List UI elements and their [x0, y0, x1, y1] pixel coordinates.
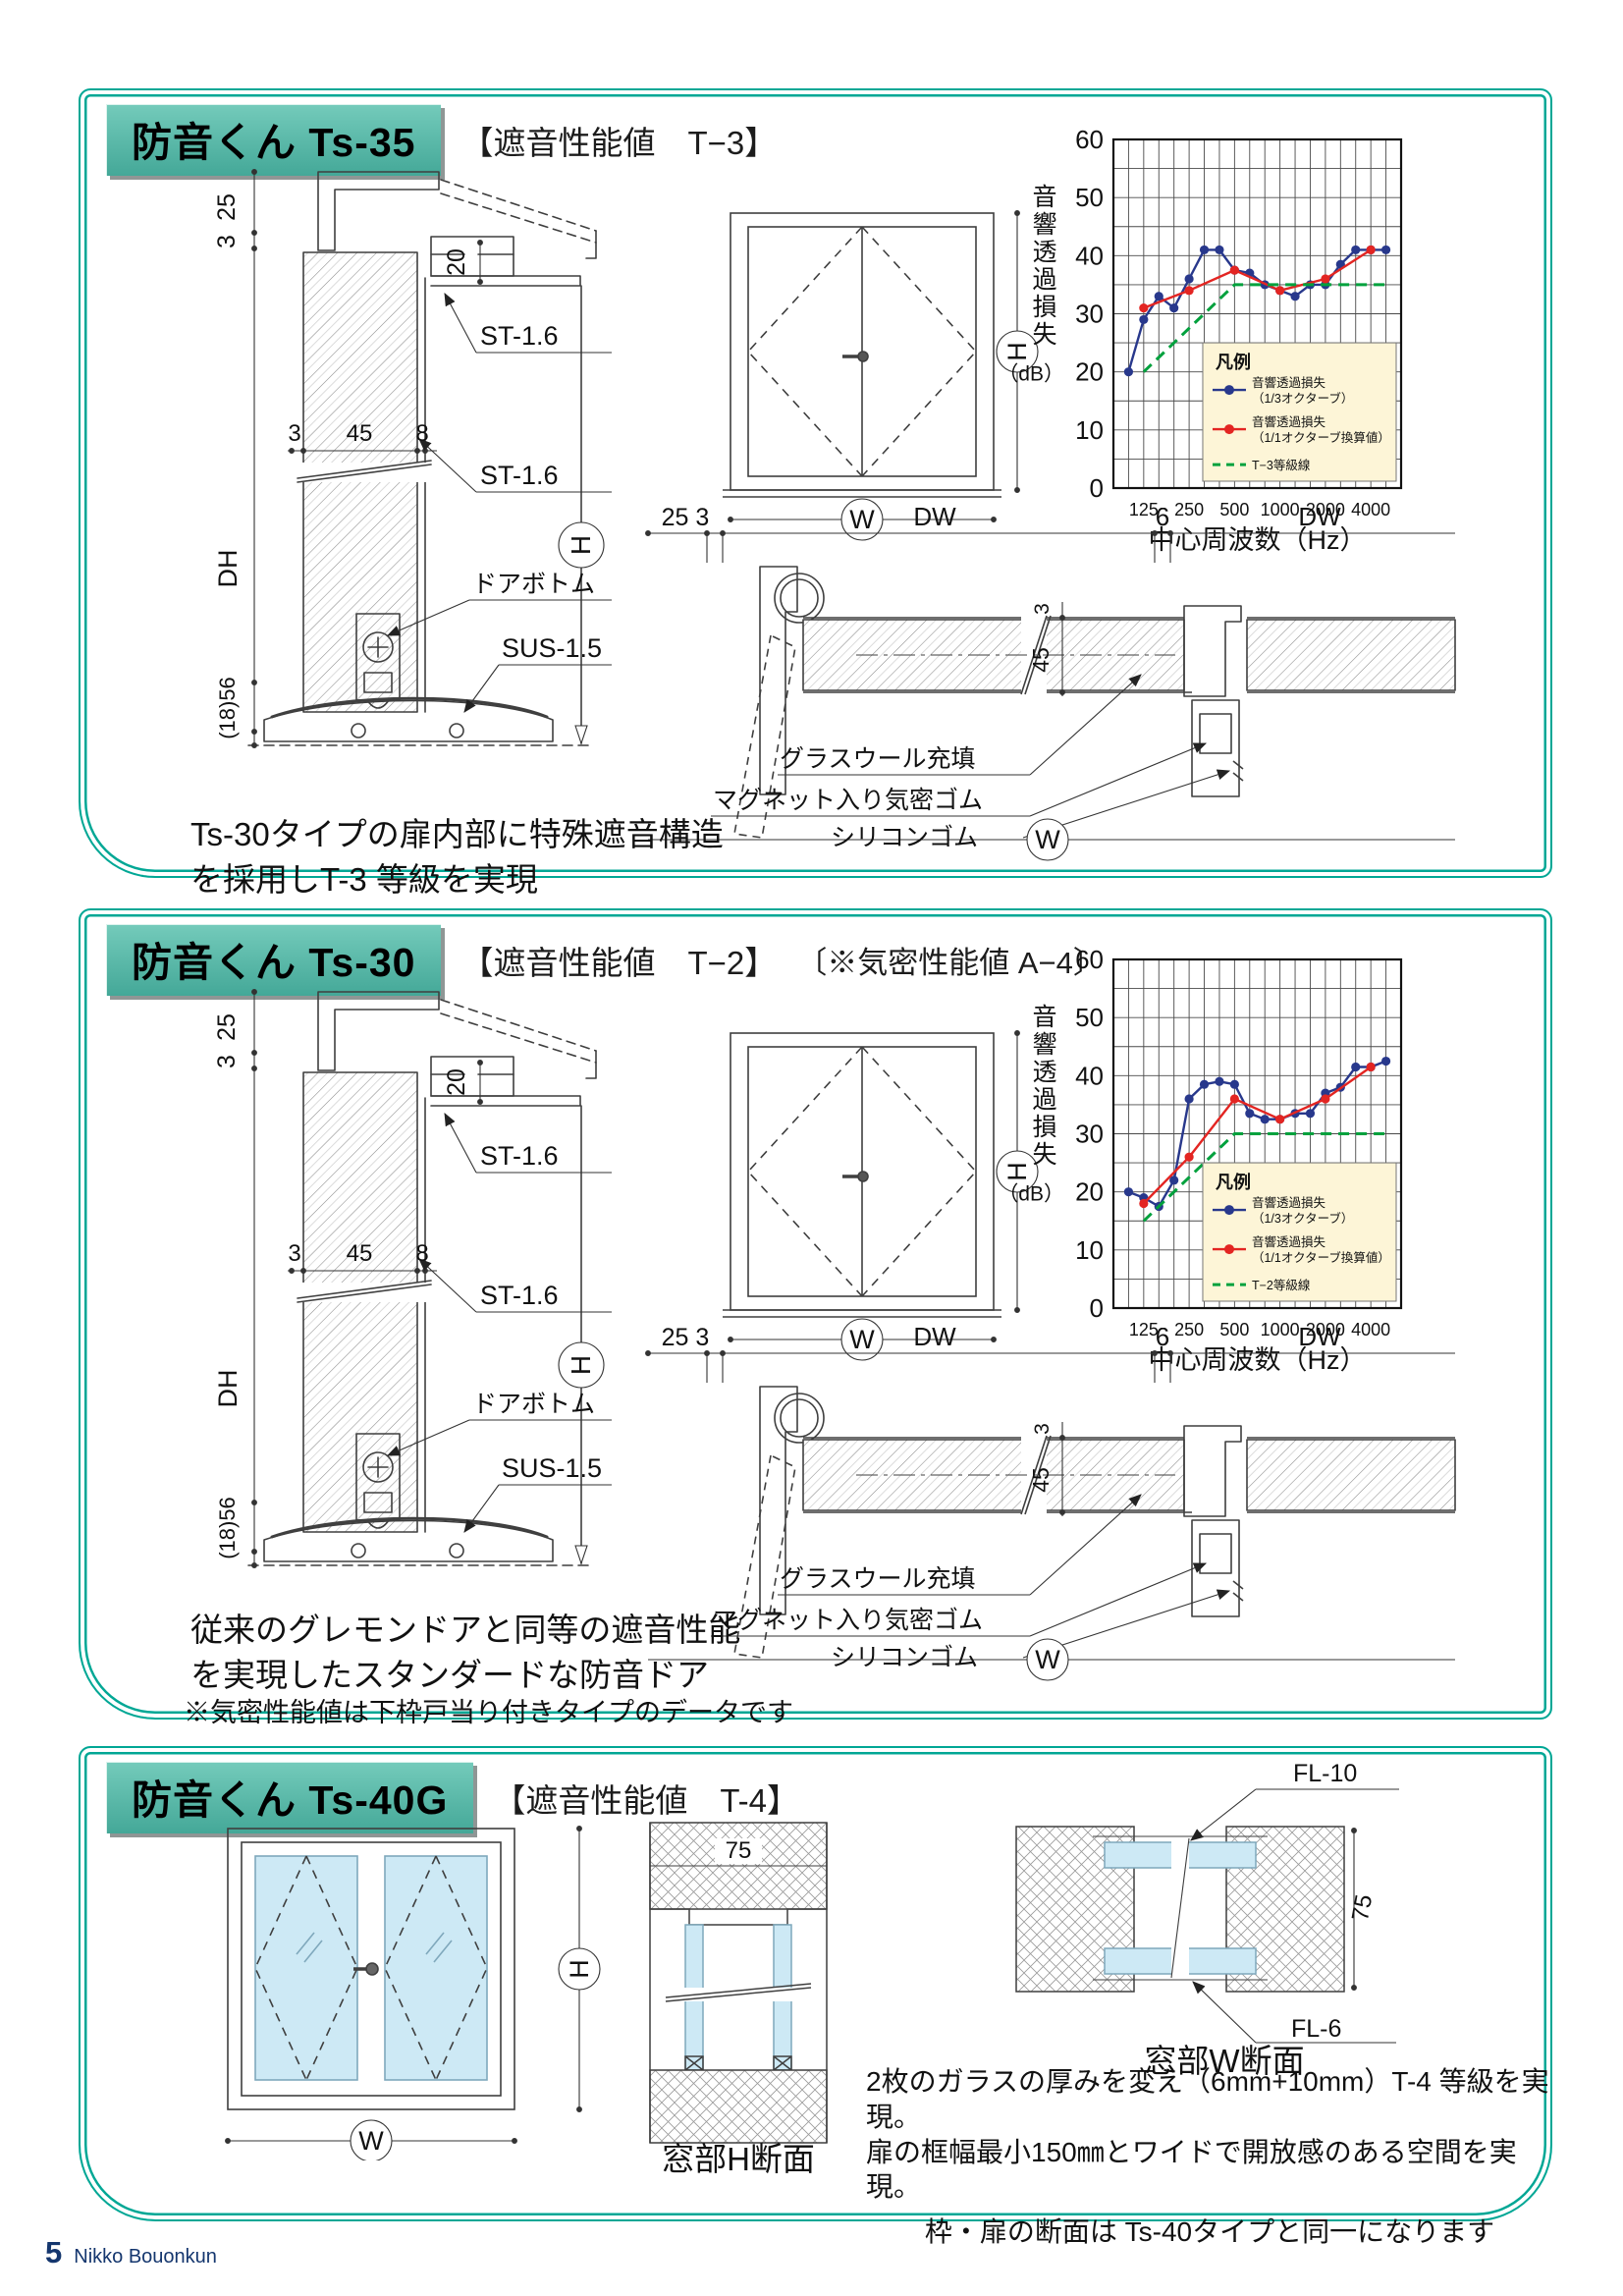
svg-text:音響透過損失: 音響透過損失: [1252, 375, 1326, 390]
svg-text:50: 50: [1075, 183, 1104, 212]
sus15-label: SUS-1.5: [502, 1453, 602, 1483]
panel-ts35: 防音くん Ts-35 【遮音性能値 T−3】: [79, 88, 1552, 878]
dim-45-label: 45: [347, 420, 373, 447]
magnet-seal-label: マグネット入り気密ゴム: [713, 1607, 983, 1634]
svg-text:凡例: 凡例: [1216, 1172, 1251, 1192]
dim-6-label: 6: [1156, 508, 1169, 531]
silicone-label: シリコンゴム: [831, 1644, 978, 1671]
dim-45-label: 45: [1028, 647, 1054, 673]
svg-text:音響透過損失: 音響透過損失: [1252, 414, 1326, 429]
ts40g-caption-line3: 枠・扉の断面は Ts-40タイプと同一になります: [866, 2214, 1553, 2250]
st16-label-top: ST-1.6: [480, 321, 559, 351]
ts40g-caption-line2: 扉の框幅最小150㎜とワイドで開放感のある空間を実現。: [866, 2137, 1517, 2203]
dim-20-label: 20: [443, 1068, 470, 1096]
dw-label-right: DW: [1298, 1328, 1341, 1351]
glasswool-label: グラスウール充填: [780, 745, 976, 773]
dim-75-label: 75: [1347, 1892, 1378, 1923]
dh-label: DH: [213, 550, 243, 588]
dim-75-label: 75: [726, 1837, 752, 1864]
svg-text:（dB）: （dB）: [998, 363, 1064, 386]
svg-text:音響透過損失: 音響透過損失: [1252, 1195, 1326, 1210]
fl10-label: FL-10: [1293, 1760, 1357, 1787]
dim-1856-label: (18)56: [215, 1497, 240, 1559]
ts35-caption-line2: を採用しT-3 等級を実現: [190, 861, 538, 898]
dim-20-label: 20: [443, 248, 470, 276]
dim-3-label: 3: [213, 1055, 241, 1068]
page-number: 5: [45, 2235, 62, 2270]
dim-253-label: 25 3: [662, 1328, 710, 1351]
dim-25-label: 25: [213, 193, 241, 221]
magnet-seal-label: マグネット入り気密ゴム: [713, 787, 983, 814]
door-vertical-section-drawing: 25 3 20 ST-1.6 ST-1.6 3 45 8 DH H ドアボトム …: [135, 964, 616, 1652]
dim-8-label: 8: [415, 420, 428, 447]
svg-text:（1/3オクターブ）: （1/3オクターブ）: [1252, 1211, 1353, 1226]
svg-text:（dB）: （dB）: [998, 1183, 1064, 1206]
brand-name: Nikko Bouonkun: [74, 2246, 217, 2269]
dim-45-label: 45: [1028, 1467, 1054, 1493]
svg-text:10: 10: [1075, 415, 1104, 445]
st16-label-top: ST-1.6: [480, 1141, 559, 1171]
width-symbol: W: [358, 2126, 384, 2156]
svg-text:損: 損: [1032, 1114, 1056, 1141]
svg-text:響: 響: [1032, 1031, 1056, 1059]
ts30-caption: 従来のグレモンドアと同等の遮音性能 を実現したスタンダードな防音ドア: [190, 1608, 740, 1697]
window-h-section-drawing: 75: [611, 1809, 866, 2148]
dw-label-left: DW: [913, 508, 956, 531]
height-symbol: H: [566, 1355, 596, 1375]
window-elevation-drawing: H W: [198, 1817, 650, 2160]
dim-3b-label: 3: [288, 420, 300, 447]
svg-text:20: 20: [1075, 1177, 1104, 1207]
svg-text:（1/1オクターブ換算値）: （1/1オクターブ換算値）: [1252, 1250, 1390, 1265]
svg-text:音: 音: [1032, 184, 1056, 211]
svg-text:50: 50: [1075, 1003, 1104, 1032]
dim-8-label: 8: [415, 1240, 428, 1267]
st16-label-mid: ST-1.6: [480, 1281, 559, 1310]
svg-text:凡例: 凡例: [1216, 352, 1251, 372]
svg-text:30: 30: [1075, 300, 1104, 329]
dim-3-label: 3: [1031, 1423, 1054, 1435]
panel-ts30: 防音くん Ts-30 【遮音性能値 T−2】 〔※気密性能値 A−4〕: [79, 908, 1552, 1720]
elev-lines: [723, 213, 1001, 497]
svg-text:透: 透: [1032, 239, 1056, 266]
ts40g-caption: 2枚のガラスの厚みを変え（6mm+10mm）T-4 等級を実現。 扉の框幅最小1…: [866, 2064, 1553, 2250]
h-section-caption: 窓部H断面: [611, 2133, 866, 2180]
doorbottom-label: ドアボトム: [472, 1391, 595, 1418]
svg-text:失: 失: [1032, 321, 1056, 349]
svg-text:失: 失: [1032, 1141, 1056, 1169]
width-symbol: W: [1035, 1645, 1060, 1674]
svg-text:音響透過損失: 音響透過損失: [1252, 1234, 1326, 1249]
dim-1856-label: (18)56: [215, 677, 240, 739]
svg-text:40: 40: [1075, 241, 1104, 270]
svg-text:0: 0: [1090, 1293, 1104, 1323]
svg-text:30: 30: [1075, 1120, 1104, 1149]
ts30-caption-line2: を実現したスタンダードな防音ドア: [190, 1657, 709, 1693]
svg-text:0: 0: [1090, 473, 1104, 503]
dim-3b-label: 3: [288, 1240, 300, 1267]
winelev-lines: [228, 1829, 514, 2109]
dim-3-label: 3: [213, 235, 241, 248]
ts35-caption-line1: Ts-30タイプの扉内部に特殊遮音構造: [190, 816, 724, 852]
ts35-caption: Ts-30タイプの扉内部に特殊遮音構造 を採用しT-3 等級を実現: [190, 812, 724, 902]
width-symbol: W: [1035, 825, 1060, 854]
svg-text:（1/1オクターブ換算値）: （1/1オクターブ換算値）: [1252, 430, 1390, 445]
height-symbol: H: [566, 535, 596, 555]
dim-25-label: 25: [213, 1013, 241, 1041]
svg-text:過: 過: [1032, 266, 1056, 294]
hsec40-lines: [650, 1823, 827, 2143]
dim-45-label: 45: [347, 1240, 373, 1267]
chart-root: 1020304050600125250500100020004000中心周波数（…: [998, 945, 1401, 1375]
doorbottom-label: ドアボトム: [472, 571, 595, 598]
ts30-note: ※気密性能値は下枠戸当り付きタイプのデータです: [184, 1691, 793, 1729]
svg-text:10: 10: [1075, 1235, 1104, 1265]
glasswool-label: グラスウール充填: [780, 1565, 976, 1593]
dw-label-right: DW: [1298, 508, 1341, 531]
svg-text:響: 響: [1032, 211, 1056, 239]
svg-text:T−3等級線: T−3等級線: [1252, 458, 1311, 472]
panel-ts40g: 防音くん Ts-40G 【遮音性能値 T-4】: [79, 1746, 1552, 2221]
ts30-caption-line1: 従来のグレモンドアと同等の遮音性能: [190, 1612, 740, 1648]
svg-text:T−2等級線: T−2等級線: [1252, 1278, 1311, 1292]
chart-root: 1020304050600125250500100020004000中心周波数（…: [998, 125, 1401, 555]
dim-253-label: 25 3: [662, 508, 710, 531]
st16-label-mid: ST-1.6: [480, 461, 559, 490]
svg-text:過: 過: [1032, 1086, 1056, 1114]
window-w-section-drawing: FL-10 FL-6 75: [999, 1756, 1421, 2060]
page-footer: 5 Nikko Bouonkun: [45, 2235, 217, 2270]
svg-text:60: 60: [1075, 125, 1104, 154]
ts40g-caption-line1: 2枚のガラスの厚みを変え（6mm+10mm）T-4 等級を実現。: [866, 2066, 1549, 2132]
elev-lines: [723, 1033, 1001, 1317]
svg-text:60: 60: [1075, 945, 1104, 974]
door-horizontal-section-drawing: 25 3 DW 6 DW 3 45 グラスウール充填 マグネット入り気密ゴム シ…: [611, 508, 1465, 866]
silicone-label: シリコンゴム: [831, 824, 978, 851]
dim-6-label: 6: [1156, 1328, 1169, 1351]
sus15-label: SUS-1.5: [502, 633, 602, 663]
svg-text:40: 40: [1075, 1061, 1104, 1090]
svg-text:（1/3オクターブ）: （1/3オクターブ）: [1252, 391, 1353, 406]
dh-label: DH: [213, 1370, 243, 1408]
dw-label-left: DW: [913, 1328, 956, 1351]
height-symbol: H: [565, 1959, 594, 1979]
door-vertical-section-drawing: 25 3 20 ST-1.6 ST-1.6 3 45 8 DH H ドアボトム …: [135, 144, 616, 832]
svg-text:音: 音: [1032, 1004, 1056, 1031]
catalog-page: 防音くん Ts-35 【遮音性能値 T−3】: [0, 0, 1623, 2296]
svg-text:20: 20: [1075, 357, 1104, 387]
dim-3-label: 3: [1031, 603, 1054, 615]
svg-text:透: 透: [1032, 1059, 1056, 1086]
svg-text:損: 損: [1032, 294, 1056, 321]
wsec40-lines: [1016, 1827, 1344, 1992]
